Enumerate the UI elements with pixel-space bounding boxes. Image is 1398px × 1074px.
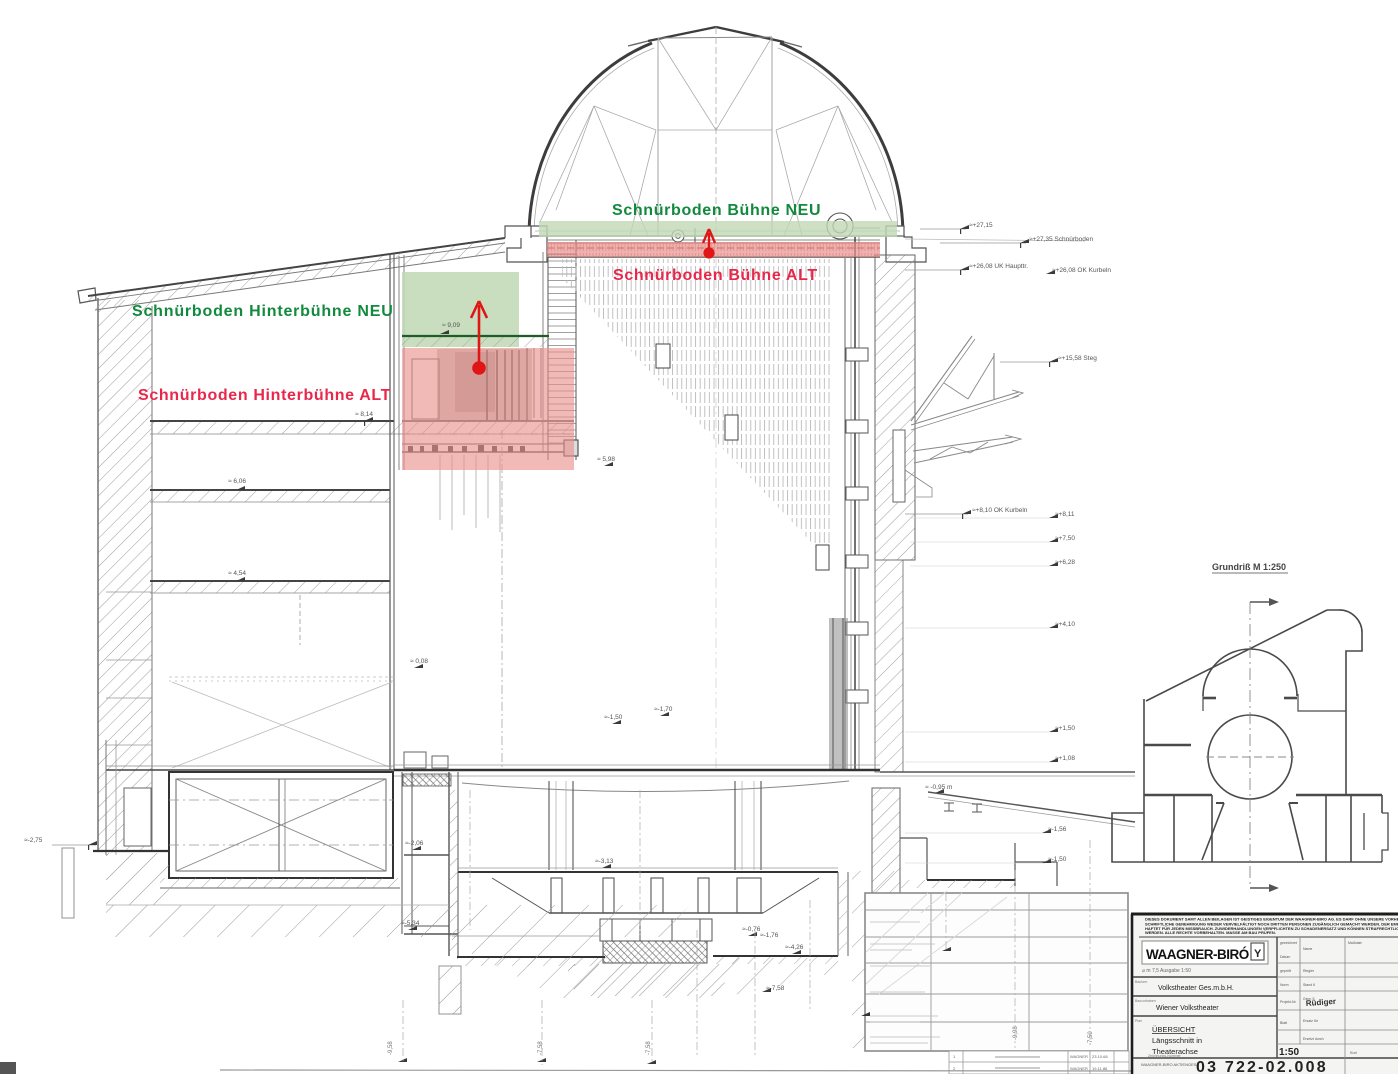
svg-text:Wiener Volkstheater: Wiener Volkstheater bbox=[1156, 1005, 1219, 1012]
svg-text:Blatt: Blatt bbox=[1280, 1021, 1287, 1025]
svg-text:geprüft: geprüft bbox=[1280, 969, 1291, 973]
svg-text:≈ 4,54: ≈ 4,54 bbox=[228, 570, 246, 577]
svg-text:19.11.86: 19.11.86 bbox=[1092, 1066, 1108, 1071]
svg-text:≈+8,10 OK Kurbeln: ≈+8,10 OK Kurbeln bbox=[972, 507, 1028, 514]
svg-text:≈ 8,14: ≈ 8,14 bbox=[355, 411, 373, 418]
svg-text:≈ 5,98: ≈ 5,98 bbox=[597, 456, 615, 463]
svg-text:gezeichnet: gezeichnet bbox=[1280, 941, 1297, 945]
svg-text:≈ -0,95 m: ≈ -0,95 m bbox=[925, 784, 952, 791]
svg-text:Längsschnitt in: Längsschnitt in bbox=[1152, 1036, 1202, 1045]
svg-text:≈+15,58 Steg: ≈+15,58 Steg bbox=[1058, 355, 1097, 362]
svg-text:≈+27,35 Schnürboden: ≈+27,35 Schnürboden bbox=[1029, 236, 1093, 243]
svg-text:≈+6,28: ≈+6,28 bbox=[1055, 559, 1075, 566]
svg-text:≈-4,26: ≈-4,26 bbox=[785, 944, 804, 951]
svg-text:WAGNER: WAGNER bbox=[1070, 1054, 1088, 1059]
svg-text:Bauvorhaben: Bauvorhaben bbox=[1135, 999, 1156, 1003]
svg-text:≈+27,15: ≈+27,15 bbox=[969, 222, 993, 229]
svg-text:≈ 0,08: ≈ 0,08 bbox=[410, 658, 428, 665]
svg-text:WAAGNER-BIRO AKTIENGES.: WAAGNER-BIRO AKTIENGES. bbox=[1141, 1062, 1198, 1067]
svg-text:≈+7,50: ≈+7,50 bbox=[1055, 535, 1075, 542]
svg-text:⌀ m 7,5 Ausgabe 1:50: ⌀ m 7,5 Ausgabe 1:50 bbox=[1142, 968, 1191, 974]
svg-text:Projekt-Nr.: Projekt-Nr. bbox=[1280, 1000, 1297, 1004]
svg-text:Zeichnungs-Nummer: Zeichnungs-Nummer bbox=[1148, 1054, 1182, 1058]
svg-text:≈ 9,09: ≈ 9,09 bbox=[442, 322, 460, 329]
svg-text:WAAGNER-BIRÓ: WAAGNER-BIRÓ bbox=[1146, 947, 1249, 962]
svg-text:≈-2,06: ≈-2,06 bbox=[405, 840, 424, 847]
svg-text:≈+4,10: ≈+4,10 bbox=[1055, 621, 1075, 628]
svg-text:Ersetzt durch: Ersetzt durch bbox=[1303, 1037, 1324, 1041]
svg-text:≈-5,34: ≈-5,34 bbox=[401, 920, 420, 927]
svg-text:≈ 6,06: ≈ 6,06 bbox=[228, 478, 246, 485]
svg-text:≈-1,76: ≈-1,76 bbox=[760, 932, 779, 939]
svg-text:Y: Y bbox=[1254, 948, 1262, 960]
svg-text:-9,98: -9,98 bbox=[1013, 1026, 1019, 1040]
svg-text:≈-1,50: ≈-1,50 bbox=[604, 714, 623, 721]
svg-text:-9,58: -9,58 bbox=[388, 1041, 394, 1055]
svg-text:Volkstheater Ges.m.b.H.: Volkstheater Ges.m.b.H. bbox=[1158, 985, 1234, 992]
svg-text:-7,58: -7,58 bbox=[538, 1041, 544, 1055]
svg-text:ÜBERSICHT: ÜBERSICHT bbox=[1152, 1025, 1196, 1034]
svg-text:≈+1,08: ≈+1,08 bbox=[1055, 755, 1075, 762]
svg-text:Riegler: Riegler bbox=[1303, 969, 1315, 973]
svg-text:Maßstab: Maßstab bbox=[1348, 941, 1362, 945]
svg-text:23.10.68: 23.10.68 bbox=[1092, 1054, 1108, 1059]
svg-text:Norm: Norm bbox=[1280, 983, 1289, 987]
svg-text:Blatt: Blatt bbox=[1350, 1051, 1357, 1055]
svg-text:≈+1,50: ≈+1,50 bbox=[1055, 725, 1075, 732]
svg-text:Schnürboden Bühne NEU: Schnürboden Bühne NEU bbox=[612, 202, 821, 219]
svg-text:≈-3,13: ≈-3,13 bbox=[595, 858, 614, 865]
svg-text:03 722-02.008: 03 722-02.008 bbox=[1196, 1059, 1328, 1074]
svg-text:1:50: 1:50 bbox=[1279, 1047, 1299, 1058]
svg-text:Bauherr: Bauherr bbox=[1135, 980, 1148, 984]
svg-text:≈-0,76: ≈-0,76 bbox=[742, 926, 761, 933]
svg-text:≈-1,70: ≈-1,70 bbox=[654, 706, 673, 713]
svg-text:-7,50: -7,50 bbox=[1088, 1031, 1094, 1045]
svg-text:Ersatz für: Ersatz für bbox=[1303, 1019, 1319, 1023]
svg-text:≈-2,75: ≈-2,75 bbox=[24, 837, 43, 844]
svg-text:Datum: Datum bbox=[1280, 955, 1290, 959]
svg-text:Stand 6: Stand 6 bbox=[1303, 983, 1315, 987]
svg-text:Schnürboden Hinterbühne ALT: Schnürboden Hinterbühne ALT bbox=[138, 387, 391, 404]
svg-text:WERDEN. ALLE RECHTE VORBEHALTE: WERDEN. ALLE RECHTE VORBEHALTEN. MASSE A… bbox=[1145, 930, 1276, 935]
svg-text:Plan: Plan bbox=[1135, 1019, 1142, 1023]
svg-text:Name: Name bbox=[1303, 947, 1312, 951]
svg-text:Grundriß M 1:250: Grundriß M 1:250 bbox=[1212, 562, 1286, 572]
svg-text:≈+26,08 UK Haupttr.: ≈+26,08 UK Haupttr. bbox=[969, 263, 1028, 270]
svg-text:Schnürboden Hinterbühne NEU: Schnürboden Hinterbühne NEU bbox=[132, 303, 394, 320]
svg-text:-7,58: -7,58 bbox=[646, 1041, 652, 1055]
svg-text:Schnürboden Bühne ALT: Schnürboden Bühne ALT bbox=[613, 267, 818, 284]
svg-text:WAGNER: WAGNER bbox=[1070, 1066, 1088, 1071]
svg-text:≈+26,08 OK Kurbeln: ≈+26,08 OK Kurbeln bbox=[1052, 267, 1111, 274]
